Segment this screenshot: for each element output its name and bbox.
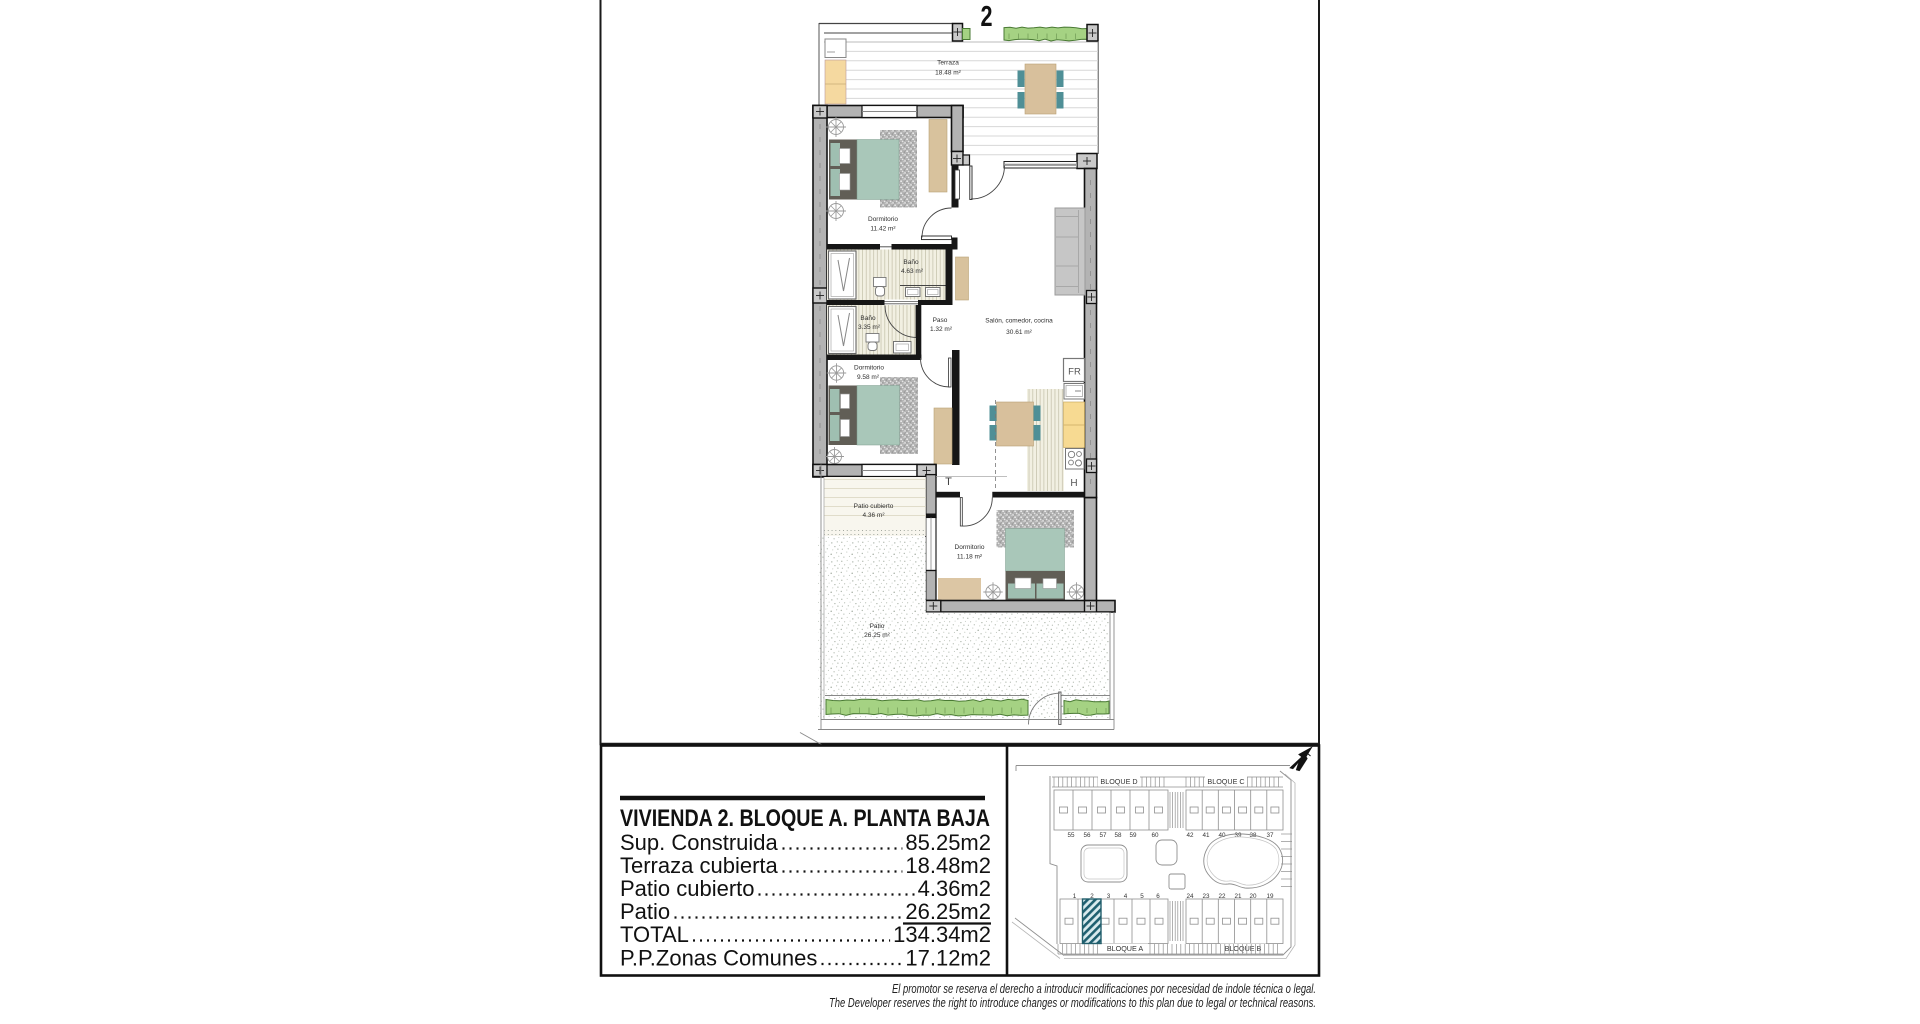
svg-text:37: 37 bbox=[1266, 832, 1274, 839]
svg-text:BLOQUE D: BLOQUE D bbox=[1100, 777, 1137, 786]
svg-text:39: 39 bbox=[1234, 832, 1242, 839]
svg-text:41: 41 bbox=[1202, 832, 1210, 839]
svg-text:26.25m2: 26.25m2 bbox=[905, 899, 991, 924]
svg-text:134.34m2: 134.34m2 bbox=[893, 922, 991, 947]
svg-text:17.12m2: 17.12m2 bbox=[905, 946, 991, 971]
svg-text:Patio cubierto: Patio cubierto bbox=[620, 876, 755, 901]
svg-text:58: 58 bbox=[1114, 832, 1122, 839]
svg-text:56: 56 bbox=[1083, 832, 1091, 839]
svg-text:55: 55 bbox=[1067, 832, 1075, 839]
svg-text:Terraza cubierta: Terraza cubierta bbox=[620, 853, 779, 878]
svg-text:BLOQUE C: BLOQUE C bbox=[1207, 777, 1244, 786]
svg-text:Sup. Construida: Sup. Construida bbox=[620, 830, 779, 855]
svg-text:P.P.Zonas Comunes: P.P.Zonas Comunes bbox=[620, 946, 817, 971]
svg-text:85.25m2: 85.25m2 bbox=[905, 830, 991, 855]
svg-text:Patio: Patio bbox=[620, 899, 670, 924]
svg-text:BLOQUE B: BLOQUE B bbox=[1225, 944, 1262, 953]
svg-text:4.36m2: 4.36m2 bbox=[918, 876, 991, 901]
svg-text:57: 57 bbox=[1099, 832, 1107, 839]
svg-text:TOTAL: TOTAL bbox=[620, 922, 689, 947]
svg-text:VIVIENDA 2. BLOQUE A. PLANTA B: VIVIENDA 2. BLOQUE A. PLANTA BAJA bbox=[620, 805, 990, 832]
svg-text:60: 60 bbox=[1151, 832, 1159, 839]
svg-text:59: 59 bbox=[1129, 832, 1137, 839]
svg-text:42: 42 bbox=[1186, 832, 1194, 839]
svg-text:BLOQUE A: BLOQUE A bbox=[1107, 944, 1144, 953]
svg-text:18.48m2: 18.48m2 bbox=[905, 853, 991, 878]
svg-text:El promotor se reserva el dere: El promotor se reserva el derecho a intr… bbox=[892, 981, 1316, 996]
svg-text:The Developer reserves the rig: The Developer reserves the right to intr… bbox=[829, 995, 1316, 1010]
